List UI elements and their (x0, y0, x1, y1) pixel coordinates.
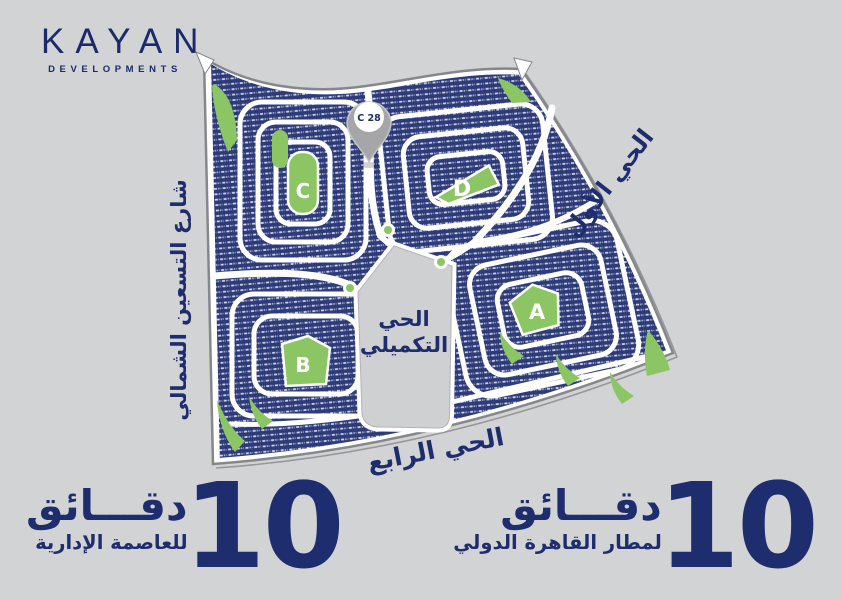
north-ninety-street-label: شارع التسعين الشمالي (167, 179, 191, 421)
green-wedge (272, 130, 288, 168)
roundabout-center (437, 258, 445, 266)
page: KAYAN DEVELOPMENTS (0, 0, 842, 600)
complementary-district-label-line2: التكميلي (360, 333, 448, 357)
badge-admin-capital-number: 10 (184, 480, 342, 572)
park-c-letter: C (296, 179, 311, 203)
badge-admin-capital-text: دقـــائق للعاصمة الإدارية (26, 484, 188, 553)
badge-cairo-airport-text: دقـــائق لمطار القاهرة الدولي (453, 484, 661, 553)
park-d-letter: D (453, 177, 471, 202)
complementary-district-label-line1: الحي (378, 307, 429, 331)
badge-cairo-airport-destination: لمطار القاهرة الدولي (453, 531, 661, 554)
badge-admin-capital: دقـــائق للعاصمة الإدارية 10 (26, 480, 342, 572)
badge-cairo-airport-unit: دقـــائق (453, 484, 661, 528)
badge-cairo-airport: دقـــائق لمطار القاهرة الدولي 10 (453, 480, 816, 572)
park-b-letter: B (295, 353, 310, 377)
badge-cairo-airport-number: 10 (658, 480, 816, 572)
pin-label: C 28 (357, 113, 381, 124)
roundabout-center (384, 226, 392, 234)
badge-admin-capital-destination: للعاصمة الإدارية (26, 531, 188, 554)
badge-admin-capital-unit: دقـــائق (26, 484, 188, 528)
roundabout-center (346, 284, 354, 292)
complementary-district: الحي التكميلي (358, 246, 452, 428)
park-a-letter: A (529, 300, 546, 324)
